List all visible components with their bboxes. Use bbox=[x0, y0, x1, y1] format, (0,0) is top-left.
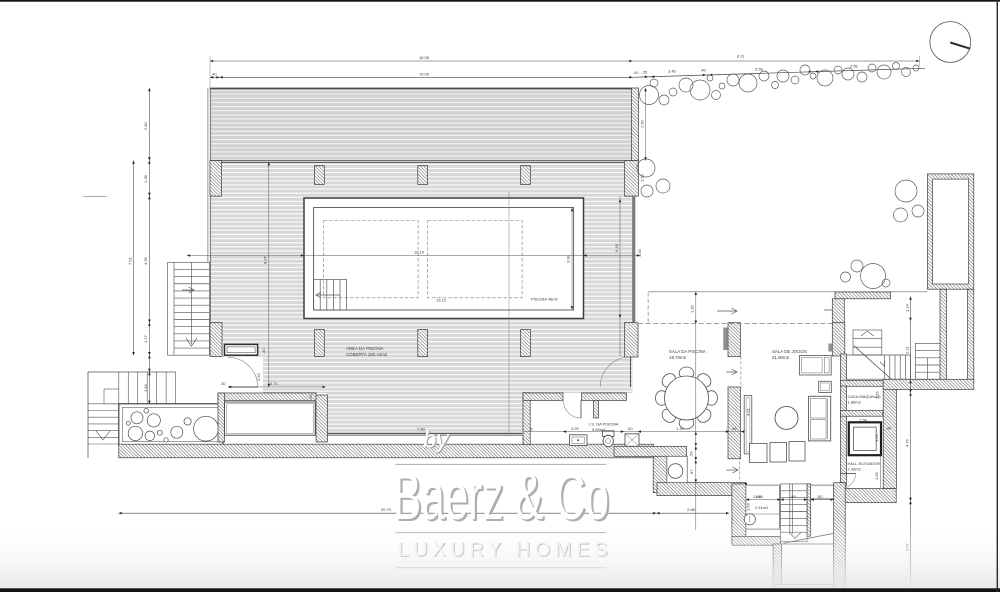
svg-text:6.43: 6.43 bbox=[614, 243, 619, 252]
svg-text:1.52: 1.52 bbox=[256, 372, 261, 381]
svg-text:.40: .40 bbox=[633, 70, 639, 75]
svg-text:.30: .30 bbox=[308, 394, 313, 400]
svg-text:.87: .87 bbox=[689, 469, 694, 475]
svg-text:1.15: 1.15 bbox=[875, 390, 880, 399]
svg-text:20.70: 20.70 bbox=[381, 507, 392, 512]
svg-text:8.97: 8.97 bbox=[263, 255, 268, 264]
svg-text:1.84: 1.84 bbox=[143, 383, 148, 392]
svg-text:4.61: 4.61 bbox=[745, 407, 750, 416]
svg-text:3.46: 3.46 bbox=[668, 69, 677, 74]
svg-text:2.88: 2.88 bbox=[687, 507, 696, 512]
svg-text:2.56: 2.56 bbox=[850, 64, 859, 69]
svg-text:7.51: 7.51 bbox=[128, 256, 133, 265]
svg-text:3.25: 3.25 bbox=[571, 426, 580, 431]
svg-text:1.22: 1.22 bbox=[874, 433, 879, 442]
svg-text:.82: .82 bbox=[817, 494, 823, 499]
svg-text:21.90m2: 21.90m2 bbox=[772, 355, 790, 360]
svg-text:.50: .50 bbox=[627, 426, 633, 431]
svg-text:I.S. DA PISCINA: I.S. DA PISCINA bbox=[589, 422, 619, 427]
svg-text:2.60: 2.60 bbox=[640, 119, 645, 128]
svg-text:.89: .89 bbox=[790, 494, 796, 499]
svg-text:4.00: 4.00 bbox=[637, 248, 642, 257]
svg-text:2.41m2: 2.41m2 bbox=[755, 505, 769, 510]
svg-text:1.56: 1.56 bbox=[874, 471, 879, 480]
svg-text:13.12: 13.12 bbox=[436, 298, 447, 303]
svg-text:.46: .46 bbox=[731, 426, 737, 431]
svg-text:1.58: 1.58 bbox=[859, 417, 868, 422]
svg-text:.40: .40 bbox=[886, 426, 892, 431]
svg-text:1.27: 1.27 bbox=[143, 334, 148, 343]
svg-text:.46: .46 bbox=[700, 68, 706, 73]
svg-text:8.11: 8.11 bbox=[737, 54, 745, 59]
svg-text:by: by bbox=[423, 426, 450, 453]
svg-text:16.10: 16.10 bbox=[414, 249, 425, 254]
svg-text:19.70m2: 19.70m2 bbox=[669, 355, 687, 360]
svg-text:.40: .40 bbox=[261, 348, 266, 354]
svg-text:.40: .40 bbox=[211, 72, 217, 77]
svg-text:1.14: 1.14 bbox=[904, 303, 909, 312]
svg-text:1.86m2: 1.86m2 bbox=[848, 400, 862, 405]
svg-text:SALA DA PISCINA: SALA DA PISCINA bbox=[669, 349, 706, 354]
svg-text:1.46: 1.46 bbox=[676, 426, 685, 431]
svg-text:1.30: 1.30 bbox=[690, 304, 695, 313]
svg-text:HALL ELEVADOR: HALL ELEVADOR bbox=[848, 461, 881, 466]
svg-text:2.43m2: 2.43m2 bbox=[848, 467, 862, 472]
svg-text:4.96: 4.96 bbox=[143, 256, 148, 265]
svg-text:1.48: 1.48 bbox=[755, 494, 764, 499]
svg-text:2.80: 2.80 bbox=[143, 121, 148, 130]
svg-text:1.63: 1.63 bbox=[745, 502, 750, 511]
svg-text:.35: .35 bbox=[642, 70, 648, 75]
svg-text:4.76: 4.76 bbox=[904, 438, 909, 447]
svg-text:3.58: 3.58 bbox=[755, 66, 764, 71]
svg-text:16.35: 16.35 bbox=[419, 55, 430, 60]
svg-text:SALA DE JOGOS: SALA DE JOGOS bbox=[772, 349, 807, 354]
svg-text:COBERTA 150.44m2: COBERTA 150.44m2 bbox=[346, 352, 388, 357]
svg-text:.54: .54 bbox=[688, 451, 693, 457]
svg-text:ÁREA DA PISCINA: ÁREA DA PISCINA bbox=[346, 346, 384, 351]
svg-text:PISCINA 48m2: PISCINA 48m2 bbox=[531, 297, 559, 302]
svg-text:2.21: 2.21 bbox=[904, 345, 909, 354]
svg-text:15.55: 15.55 bbox=[419, 72, 430, 77]
svg-text:3.71: 3.71 bbox=[270, 381, 279, 386]
svg-text:1.38: 1.38 bbox=[143, 174, 148, 183]
svg-text:.30: .30 bbox=[220, 381, 226, 386]
